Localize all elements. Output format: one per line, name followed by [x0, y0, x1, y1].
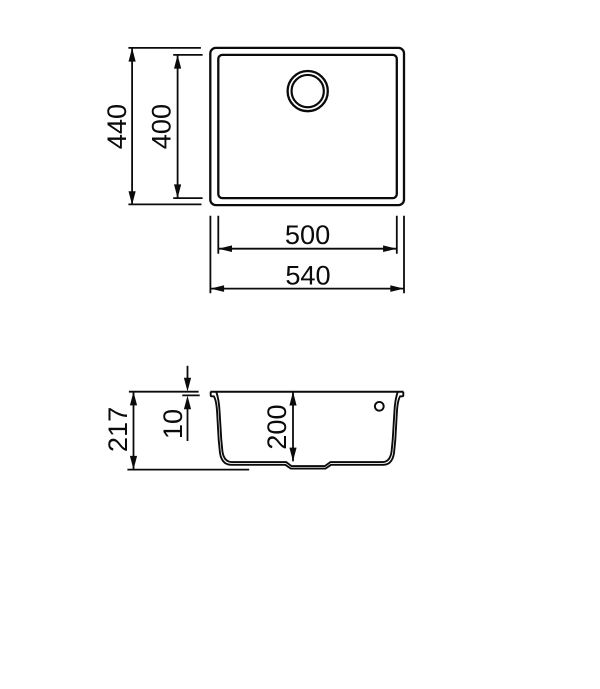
- svg-text:500: 500: [285, 219, 330, 250]
- svg-text:400: 400: [145, 104, 176, 149]
- svg-text:440: 440: [101, 104, 132, 149]
- svg-text:540: 540: [285, 259, 330, 290]
- svg-text:217: 217: [102, 407, 133, 452]
- svg-text:10: 10: [157, 409, 188, 439]
- svg-text:200: 200: [261, 404, 292, 449]
